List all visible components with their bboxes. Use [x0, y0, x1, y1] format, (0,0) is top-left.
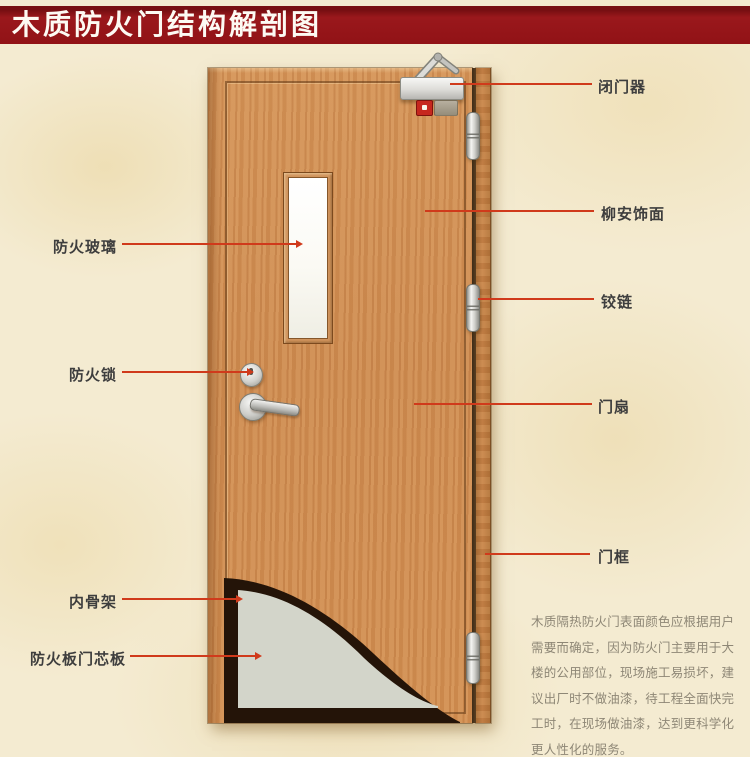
leader-line-fire-glass — [122, 243, 297, 245]
title-banner: 木质防火门结构解剖图 — [0, 6, 750, 44]
description-line: 木质隔热防火门表面颜色应根据用户 — [531, 610, 741, 636]
callout-label-fire-glass: 防火玻璃 — [53, 236, 117, 257]
description-line: 更人性化的服务。 — [531, 738, 741, 757]
door-closer-body — [400, 77, 464, 100]
description-line: 楼的公用部位，现场施工易损坏，建 — [531, 661, 741, 687]
metal-plate — [434, 100, 458, 116]
description-text: 木质隔热防火门表面颜色应根据用户 需要而确定，因为防火门主要用于大 楼的公用部位… — [531, 610, 741, 757]
hinge-top — [466, 112, 480, 160]
callout-label-fire-lock: 防火锁 — [69, 364, 117, 385]
callout-label-fire-board-core: 防火板门芯板 — [30, 648, 126, 669]
description-line: 需要而确定，因为防火门主要用于大 — [531, 636, 741, 662]
leader-line-door-closer — [450, 83, 592, 85]
diagram-canvas: 木质防火门结构解剖图 — [0, 0, 750, 757]
leader-line-lauan-veneer — [425, 210, 594, 212]
alarm-indicator-dot — [422, 105, 427, 110]
hinge-middle — [466, 284, 480, 332]
description-line: 议出厂时不做油漆，待工程全面快完 — [531, 687, 741, 713]
hinge-bottom — [466, 632, 480, 684]
alarm-indicator — [416, 100, 433, 116]
leader-line-hinge — [478, 298, 594, 300]
door-gap — [472, 68, 476, 723]
leader-line-fire-lock — [122, 371, 248, 373]
door-frame-strip — [476, 68, 491, 723]
callout-label-door-leaf: 门扇 — [598, 396, 630, 417]
leader-line-door-frame — [485, 553, 590, 555]
callout-label-inner-skeleton: 内骨架 — [69, 591, 117, 612]
arrowhead-icon — [236, 595, 243, 603]
leader-line-fire-board-core — [130, 655, 256, 657]
arrowhead-icon — [296, 240, 303, 248]
callout-label-hinge: 铰链 — [601, 291, 633, 312]
arrowhead-icon — [247, 368, 254, 376]
leader-line-door-leaf — [414, 403, 592, 405]
leader-line-inner-skeleton — [122, 598, 237, 600]
arrowhead-icon — [255, 652, 262, 660]
page-title: 木质防火门结构解剖图 — [0, 6, 750, 44]
callout-label-lauan-veneer: 柳安饰面 — [601, 203, 665, 224]
callout-label-door-frame: 门框 — [598, 546, 630, 567]
callout-label-door-closer: 闭门器 — [598, 76, 646, 97]
description-line: 工时，在现场做油漆，达到更科学化 — [531, 712, 741, 738]
